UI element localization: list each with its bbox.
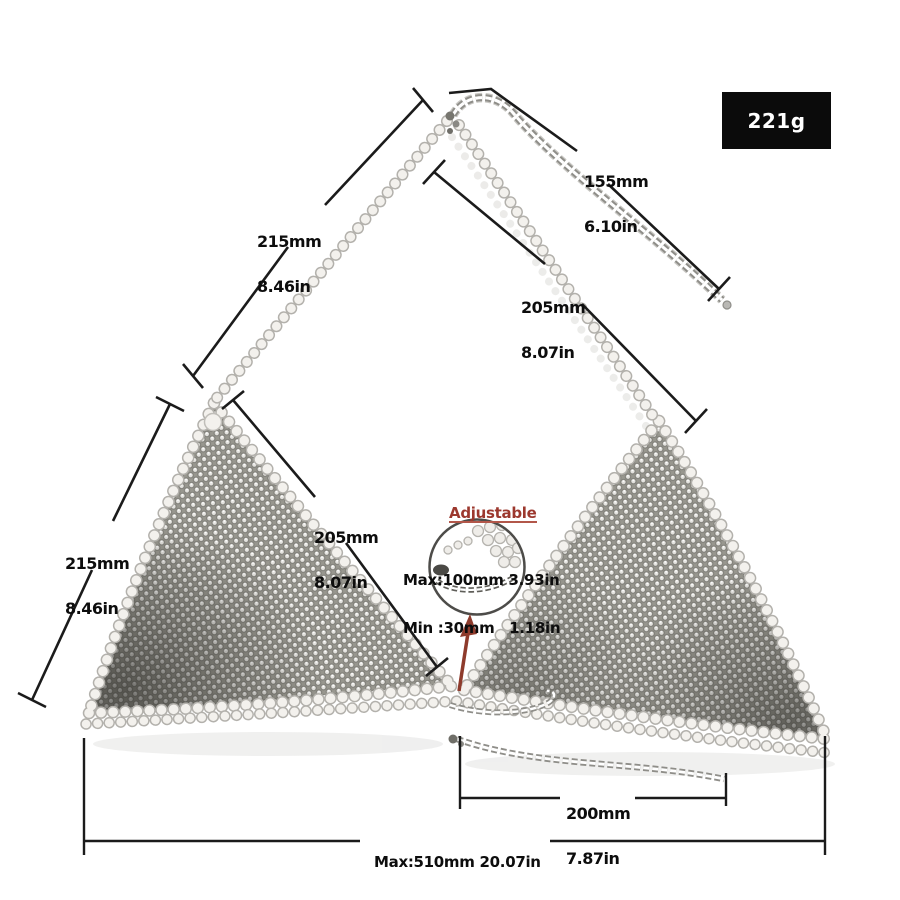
adjustable-title: Adjustable <box>403 489 553 539</box>
apex-pearl <box>205 414 222 431</box>
dim-label-cup-inner: 205mm 8.07in <box>314 500 378 620</box>
dim-label-cup-outer: 215mm 8.46in <box>65 526 129 646</box>
dim-label-neck-chain: 155mm 6.10in <box>584 144 648 264</box>
dim-label-right-strap: 205mm 8.07in <box>521 270 585 390</box>
dim-label-bottom-chain: 200mm 7.87in <box>566 776 630 896</box>
adjustable-max: Max:100mm 3.93in <box>403 572 553 588</box>
adjustable-band-note: Max:510mm 20.07in Min :410mm 16.14in Adj… <box>374 822 536 900</box>
weight-badge: 221g <box>722 92 831 149</box>
band-max: Max:510mm 20.07in <box>374 854 536 870</box>
adjustable-min: Min :30mm 1.18in <box>403 620 553 636</box>
adjustable-connector-note: Adjustable Max:100mm 3.93in Min :30mm 1.… <box>403 457 553 668</box>
weight-value: 221g <box>747 109 805 133</box>
dim-label-left-strap: 215mm 8.46in <box>257 204 321 324</box>
product-dimension-diagram: 221g 215mm 8.46in 155mm 6.10in 205mm 8.0… <box>0 0 900 900</box>
